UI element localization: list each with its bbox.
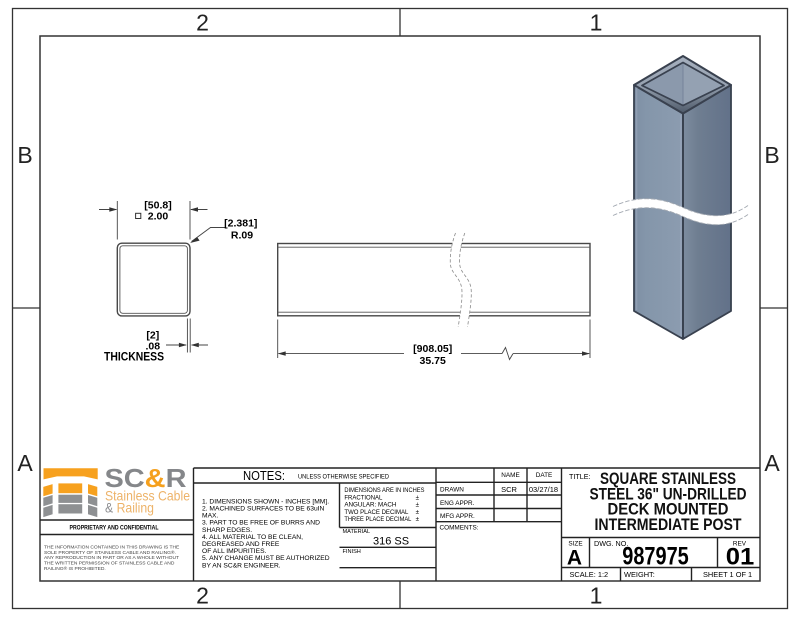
svg-text:[50.8]: [50.8] <box>144 199 171 211</box>
svg-text:DRAWN: DRAWN <box>440 487 464 494</box>
svg-text:A: A <box>17 450 33 476</box>
svg-text:THREE PLACE DECIMAL: THREE PLACE DECIMAL <box>344 516 412 523</box>
svg-text:01: 01 <box>726 543 755 570</box>
svg-text:3. PART TO BE FREE OF BURRS AN: 3. PART TO BE FREE OF BURRS AND <box>202 520 320 527</box>
svg-text:B: B <box>764 142 779 168</box>
svg-text:INTERMEDIATE POST: INTERMEDIATE POST <box>595 516 742 534</box>
svg-text:SHEET 1 OF 1: SHEET 1 OF 1 <box>703 570 752 579</box>
svg-text:1: 1 <box>590 583 603 609</box>
svg-text:THICKNESS: THICKNESS <box>104 352 164 364</box>
svg-text:MAX.: MAX. <box>202 513 218 520</box>
svg-text:OF ALL IMPURITIES.: OF ALL IMPURITIES. <box>202 548 267 555</box>
svg-text:SCALE: 1:2: SCALE: 1:2 <box>570 570 609 579</box>
svg-text:A: A <box>567 546 582 569</box>
svg-text:[2]: [2] <box>146 329 159 341</box>
svg-text:2: 2 <box>196 10 209 36</box>
svg-text:03/27/18: 03/27/18 <box>529 485 558 494</box>
svg-text:2. MACHINED SURFACES TO BE 63u: 2. MACHINED SURFACES TO BE 63uIN <box>202 506 325 513</box>
svg-text:2.00: 2.00 <box>148 211 169 223</box>
svg-text:MFG APPR.: MFG APPR. <box>440 513 475 520</box>
svg-text:ANGULAR: MACH: ANGULAR: MACH <box>344 502 396 509</box>
svg-text:NOTES:: NOTES: <box>243 468 285 483</box>
svg-text:B: B <box>17 142 32 168</box>
svg-text:SOLE PROPERTY OF STAINLESS CAB: SOLE PROPERTY OF STAINLESS CABLE AND RAI… <box>44 549 176 556</box>
svg-text:SHARP EDGES.: SHARP EDGES. <box>202 527 252 534</box>
svg-text:COMMENTS:: COMMENTS: <box>440 525 479 532</box>
svg-text:R.09: R.09 <box>231 230 253 242</box>
svg-text:35.75: 35.75 <box>420 355 446 367</box>
svg-text:±: ± <box>416 502 420 509</box>
svg-text:ENG APPR.: ENG APPR. <box>440 500 475 507</box>
svg-text:5. ANY CHANGE MUST BE AUTHORIZ: 5. ANY CHANGE MUST BE AUTHORIZED <box>202 555 330 562</box>
svg-text:PROPRIETARY AND CONFIDENTIAL: PROPRIETARY AND CONFIDENTIAL <box>70 524 159 531</box>
svg-text:ANY REPRODUCTION IN PART OR AS: ANY REPRODUCTION IN PART OR AS A WHOLE W… <box>44 555 179 561</box>
svg-text:316 SS: 316 SS <box>373 536 409 548</box>
svg-text:1. DIMENSIONS SHOWN - INCHES [: 1. DIMENSIONS SHOWN - INCHES [MM]. <box>202 498 329 505</box>
svg-text:TWO PLACE DECIMAL: TWO PLACE DECIMAL <box>344 509 409 516</box>
svg-text:THE WRITTEN PERMISSION OF STAI: THE WRITTEN PERMISSION OF STAINLESS CABL… <box>44 561 175 567</box>
svg-text:±: ± <box>416 494 420 501</box>
svg-text:SCR: SCR <box>501 485 517 494</box>
svg-text:& Railing: & Railing <box>105 500 154 516</box>
svg-text:DEGREASED AND FREE: DEGREASED AND FREE <box>202 541 280 548</box>
svg-text:1: 1 <box>590 10 603 36</box>
svg-text:TITLE:: TITLE: <box>569 472 591 481</box>
svg-text:2: 2 <box>196 583 209 609</box>
svg-text:MATERIAL: MATERIAL <box>343 529 371 535</box>
svg-text:±: ± <box>416 516 420 523</box>
svg-text:BY AN SC&R ENGINEER.: BY AN SC&R ENGINEER. <box>202 562 281 569</box>
svg-text:THE INFORMATION CONTAINED IN T: THE INFORMATION CONTAINED IN THIS DRAWIN… <box>44 545 180 551</box>
svg-text:WEIGHT:: WEIGHT: <box>624 570 655 579</box>
svg-text:FINISH: FINISH <box>343 549 361 555</box>
svg-text:987975: 987975 <box>622 542 689 570</box>
svg-text:A: A <box>764 450 780 476</box>
svg-text:NAME: NAME <box>501 472 519 479</box>
svg-text:±: ± <box>416 509 420 516</box>
svg-text:FRACTIONAL: FRACTIONAL <box>344 494 383 501</box>
svg-text:DIMENSIONS ARE IN INCHES: DIMENSIONS ARE IN INCHES <box>344 487 424 494</box>
svg-text:UNLESS OTHERWISE SPECIFIED: UNLESS OTHERWISE SPECIFIED <box>298 474 389 481</box>
svg-text:4. ALL MATERIAL TO BE CLEAN,: 4. ALL MATERIAL TO BE CLEAN, <box>202 534 303 541</box>
svg-text:RAILING® IS PROHIBITED.: RAILING® IS PROHIBITED. <box>44 565 106 572</box>
svg-text:[2.381]: [2.381] <box>224 218 257 230</box>
svg-text:DATE: DATE <box>536 472 553 479</box>
svg-text:[908.05]: [908.05] <box>413 343 452 355</box>
